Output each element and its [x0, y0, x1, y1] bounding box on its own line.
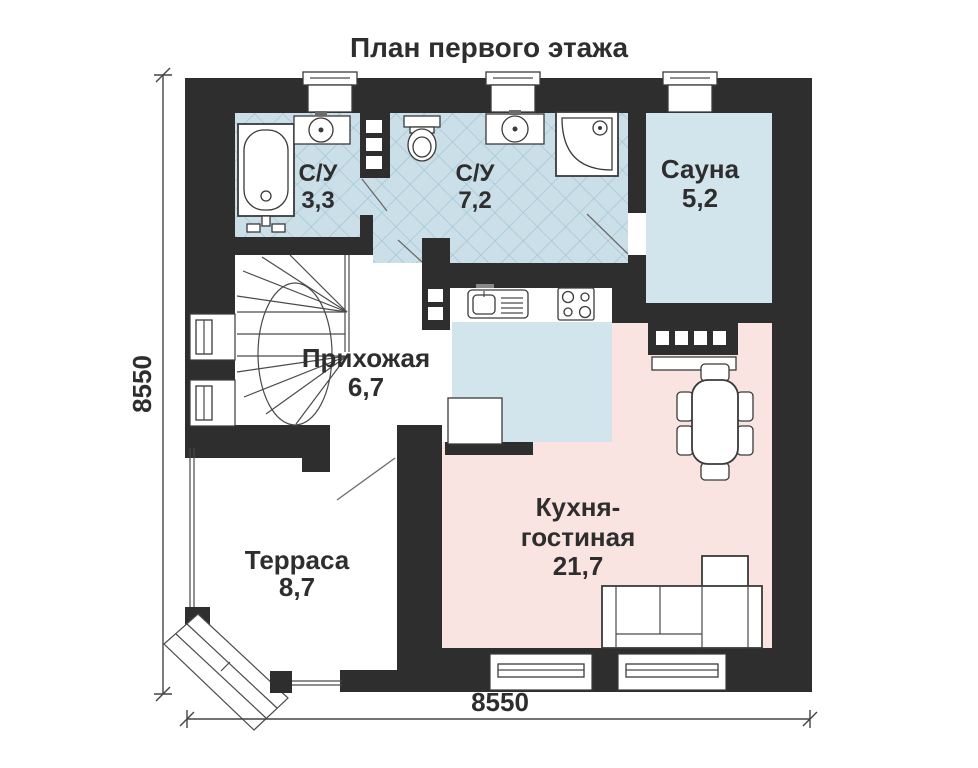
washbasin-icon — [486, 110, 544, 144]
floor-plan-page: 8550 8550 План первого этажа С/У 3,3 С/У… — [0, 0, 978, 768]
terrace-edge — [164, 448, 342, 730]
wall-sauna-south — [612, 303, 772, 323]
wall-kitchen-north — [447, 263, 628, 288]
dimension-left: 8550 — [127, 68, 172, 701]
winder-staircase-icon — [237, 255, 349, 425]
room-label-bathroom-1: С/У — [299, 160, 339, 187]
stove-square — [713, 331, 726, 345]
entrance-steps-icon — [164, 614, 288, 730]
chair-icon — [677, 426, 693, 455]
vent-square — [366, 156, 382, 169]
door-terrace — [337, 458, 395, 500]
room-label-kitchen-living-2: гостиная — [521, 522, 636, 552]
room-area-bathroom-1: 3,3 — [301, 187, 334, 214]
wall-living-west — [397, 425, 442, 692]
room-area-sauna: 5,2 — [682, 183, 718, 213]
wall-right — [772, 78, 812, 692]
chair-icon — [737, 426, 753, 455]
chair-icon — [701, 463, 729, 480]
window-bottom-1 — [490, 654, 592, 690]
wall-hallway-south-stub — [302, 425, 330, 472]
window-left-1 — [190, 314, 235, 360]
dimension-left-label: 8550 — [127, 355, 157, 413]
window-bottom-2 — [618, 654, 726, 690]
page-title: План первого этажа — [350, 32, 628, 63]
vent-window-3 — [663, 72, 717, 112]
vent-square — [428, 307, 443, 320]
kitchen-sink-icon — [468, 284, 528, 318]
wall-bathroom1-south — [185, 237, 360, 255]
kitchen-counter — [448, 398, 502, 444]
chair-icon — [737, 392, 753, 421]
corner-shower-icon — [556, 112, 618, 176]
vent-square — [428, 289, 443, 302]
bathtub-icon — [238, 124, 294, 232]
room-area-terrace: 8,7 — [279, 572, 315, 602]
chair-icon — [701, 364, 729, 381]
floor-plan-drawing: 8550 8550 План первого этажа С/У 3,3 С/У… — [0, 0, 978, 768]
sauna-door-opening — [628, 213, 646, 255]
vent-square — [366, 138, 382, 151]
stove-square — [675, 331, 688, 345]
room-label-sauna: Сауна — [661, 154, 740, 184]
vent-square — [366, 120, 382, 133]
vent-window-1 — [303, 72, 357, 112]
terrace-post — [270, 671, 292, 693]
wall-stub-bathrooms — [360, 215, 373, 255]
chair-icon — [677, 392, 693, 421]
washbasin-icon — [294, 111, 350, 144]
cooktop-icon — [558, 288, 594, 320]
room-label-kitchen-living-1: Кухня- — [536, 492, 621, 522]
room-label-terrace: Терраса — [245, 545, 350, 575]
stove-square — [694, 331, 707, 345]
stove-square — [656, 331, 669, 345]
room-area-hallway: 6,7 — [348, 372, 384, 402]
room-label-hallway: Прихожая — [302, 343, 430, 373]
dimension-bottom-label: 8550 — [471, 687, 529, 717]
window-left-2 — [190, 380, 235, 426]
room-label-bathroom-2: С/У — [456, 160, 496, 187]
room-area-kitchen-living: 21,7 — [553, 551, 604, 581]
room-area-bathroom-2: 7,2 — [458, 187, 491, 214]
vent-window-2 — [486, 72, 540, 112]
